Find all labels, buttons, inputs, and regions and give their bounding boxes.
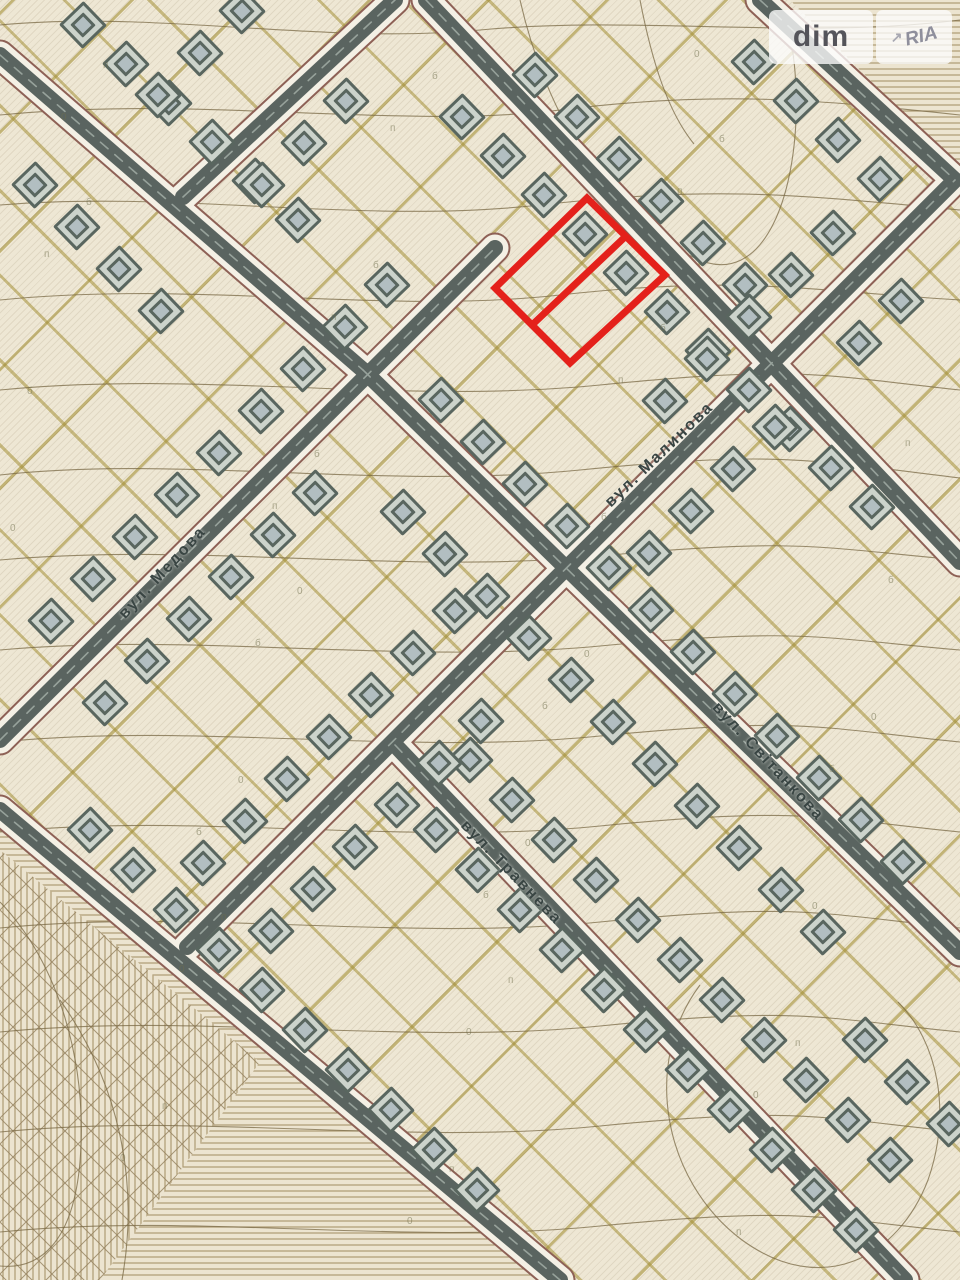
survey-glyph: б <box>196 827 202 838</box>
survey-glyph: 0 <box>120 1153 126 1164</box>
survey-glyph: б <box>660 323 666 334</box>
survey-glyph: 0 <box>584 649 590 660</box>
survey-glyph: 0 <box>179 964 185 975</box>
survey-glyph: б <box>719 134 725 145</box>
survey-glyph: п <box>795 1038 800 1049</box>
watermark-ria-text: RIA <box>902 22 939 51</box>
survey-glyph: п <box>103 60 108 71</box>
survey-glyph: 0 <box>753 1090 759 1101</box>
survey-glyph: б <box>601 512 607 523</box>
survey-glyph: б <box>373 260 379 271</box>
survey-glyph: б <box>888 575 894 586</box>
highlighted-plot-outline <box>0 0 960 1280</box>
survey-glyph: б <box>27 386 33 397</box>
watermark-dim-logo: dim <box>769 10 873 64</box>
survey-glyph: б <box>829 764 835 775</box>
survey-glyph: п <box>677 186 682 197</box>
survey-glyph: 0 <box>871 712 877 723</box>
cadastral-map: вул. Медовавул. Малиновавул. Світанковав… <box>0 0 960 1280</box>
survey-glyph: б <box>255 638 261 649</box>
survey-glyph: б <box>432 71 438 82</box>
survey-glyph: б <box>483 890 489 901</box>
survey-glyph: б <box>542 701 548 712</box>
survey-glyph: 0 <box>297 586 303 597</box>
survey-glyph: 0 <box>466 1027 472 1038</box>
survey-glyph: п <box>618 375 623 386</box>
survey-glyph: п <box>905 438 910 449</box>
watermark-ria-logo: ↗ RIA <box>876 10 952 64</box>
survey-glyph: п <box>390 123 395 134</box>
survey-glyph: п <box>508 975 513 986</box>
survey-glyph: 0 <box>61 112 67 123</box>
survey-glyph: 0 <box>525 838 531 849</box>
watermark-dim-text: dim <box>793 20 849 54</box>
watermark: dim ↗ RIA <box>769 10 952 64</box>
survey-glyph: 0 <box>10 523 16 534</box>
survey-glyph: п <box>162 1101 167 1112</box>
survey-glyph: б <box>314 449 320 460</box>
survey-glyph: п <box>272 501 277 512</box>
survey-glyph: п <box>449 1164 454 1175</box>
survey-glyph: 0 <box>694 49 700 60</box>
arrow-icon: ↗ <box>891 29 903 46</box>
survey-glyph: 0 <box>238 775 244 786</box>
survey-glyph: п <box>331 312 336 323</box>
survey-glyph: 0 <box>812 901 818 912</box>
survey-glyph: б <box>86 197 92 208</box>
survey-glyph: п <box>221 912 226 923</box>
survey-glyph: п <box>44 249 49 260</box>
survey-glyph: 0 <box>407 1216 413 1227</box>
survey-glyph: п <box>736 1227 741 1238</box>
